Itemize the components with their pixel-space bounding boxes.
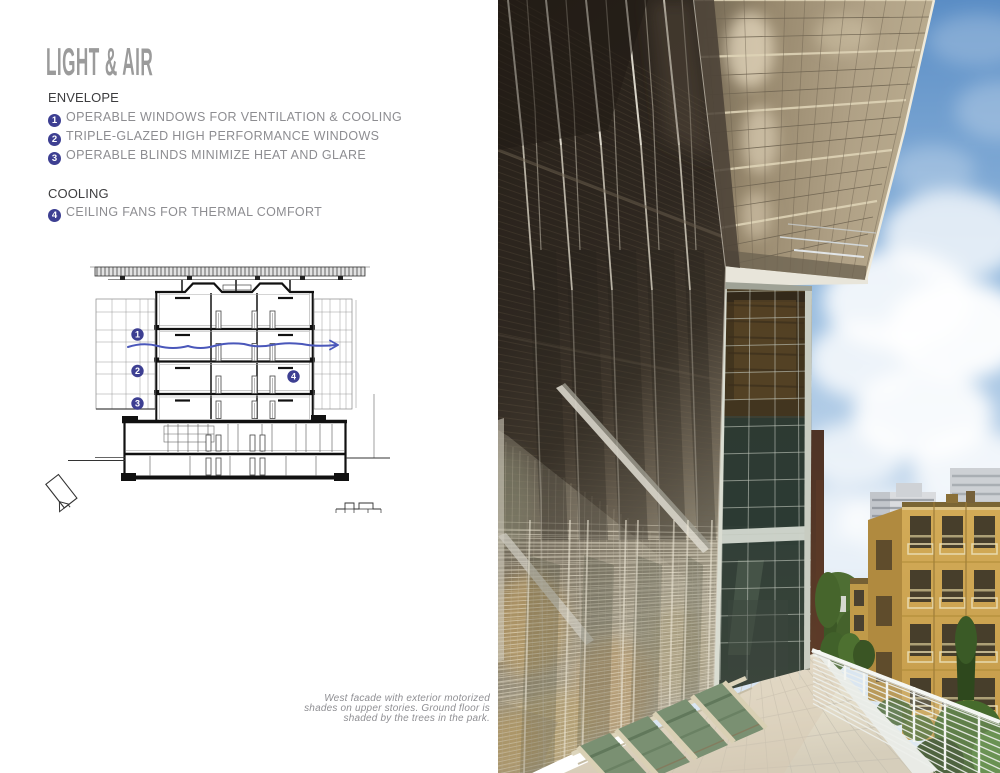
svg-text:3: 3 [135,399,140,409]
svg-text:4: 4 [291,372,296,382]
svg-text:2: 2 [135,366,140,376]
svg-text:1: 1 [135,330,140,340]
